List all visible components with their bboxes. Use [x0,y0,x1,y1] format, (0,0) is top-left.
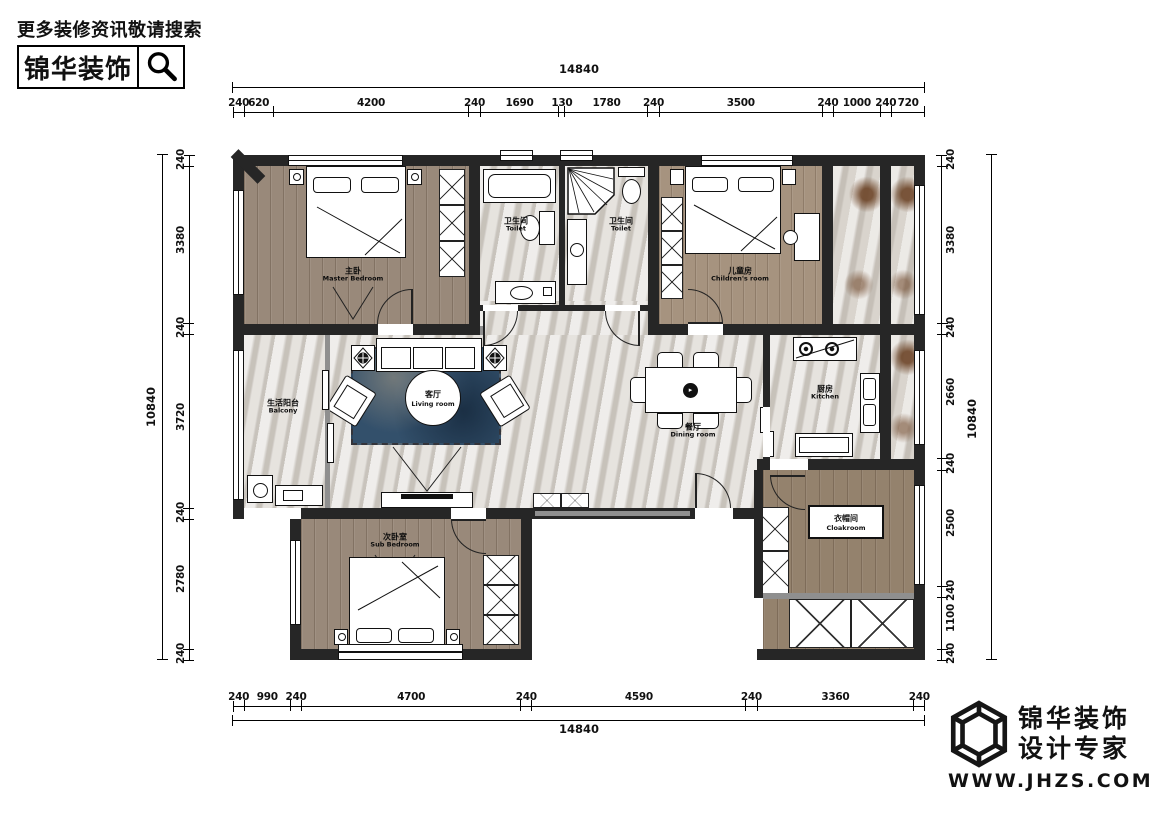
dim-left-total: 10840 [144,387,158,427]
dim-value: 4700 [397,691,425,703]
dim-value: 3720 [175,413,187,431]
master-wardrobe-cell [439,169,465,205]
dim-segment: 240 [233,97,244,113]
fixture [283,490,303,501]
window [288,155,403,166]
service-strip-floor [891,335,914,459]
dim-value: 240 [741,691,762,703]
armchair-seat [333,384,367,419]
dim-value: 240 [175,320,187,338]
label-en: Living room [411,400,454,408]
pillow [738,177,774,192]
dim-value: 4590 [625,691,653,703]
dim-segment: 3360 [757,691,914,707]
entry-door-leaf [695,473,697,508]
dim-value: 240 [945,152,957,170]
dim-segment: 720 [891,97,925,113]
wall-secondary [535,511,690,516]
dim-segment: 3720 [172,335,190,508]
dim-segment: 240 [521,691,532,707]
dim-value: 240 [175,646,187,664]
dining-chair [736,377,752,403]
door-opening [451,508,486,519]
sofa-seat [445,347,475,369]
wall [880,335,891,459]
shoe-cabinet-cell [561,493,589,508]
window [914,350,925,445]
dim-value: 240 [464,97,485,109]
dim-segment: 240 [941,324,959,335]
nightstand [407,169,422,185]
room-label-kitchen: 厨房 Kitchen [811,384,839,401]
dim-segment: 990 [244,691,290,707]
sink-basin [510,286,533,300]
room-label-toilet-left: 卫生间 Toilet [504,216,528,233]
window [914,185,925,315]
dim-top-total-line [233,87,925,88]
dim-segment: 240 [172,155,190,166]
lamp-icon [450,633,458,641]
dim-tick [157,659,168,660]
wall [521,519,532,660]
wall [880,166,891,324]
sink-counter [495,281,556,304]
dim-chain-left: 240 3380 240 3720 240 2780 240 [172,155,190,660]
dining-chair [657,352,683,368]
window-sill [500,150,533,161]
dim-value: 620 [248,97,269,109]
window [914,485,925,585]
dining-chair [630,377,646,403]
wall [469,166,480,324]
label-en: Dining room [671,432,716,440]
brand-website: WWW.JHZS.COM [948,770,1143,792]
dim-segment: 4200 [273,97,469,113]
wall [822,166,833,324]
sink-basin [863,378,876,400]
dim-value: 240 [817,97,838,109]
dim-chain-top: 240 620 4200 240 1690 130 1780 240 3500 … [233,97,925,113]
sub-wardrobe-cell [483,585,519,615]
sub-wardrobe-cell [483,615,519,645]
dim-value: 1780 [592,97,620,109]
master-wardrobe-cell [439,205,465,241]
dim-chain-right: 240 3380 240 2660 240 2500 240 1100 240 [941,155,959,660]
dim-value: 1000 [843,97,871,109]
toilet-tank [618,167,645,177]
door-leaf [770,475,805,477]
label-en: Children's room [711,276,769,284]
pillow [692,177,728,192]
pillow [361,177,399,193]
page: { "branding_top": { "tagline": "更多装修资讯敬请… [0,0,1158,818]
nightstand [289,169,304,185]
dim-segment: 240 [822,97,833,113]
dim-segment: 1690 [480,97,559,113]
dim-value: 720 [898,97,919,109]
window [233,350,244,500]
dim-value: 3380 [175,236,187,254]
room-label-balcony: 生活阳台 Balcony [267,398,299,415]
nightstand [782,169,796,185]
top-right-strip-floor [891,166,914,324]
dim-chain-bottom: 240 990 240 4700 240 4590 240 3360 240 [233,691,925,707]
label-en: Toilet [609,226,633,234]
dim-segment: 240 [941,649,959,660]
nightstand [334,629,348,645]
door-leaf [411,289,413,324]
door-leaf [688,322,723,324]
wall [301,508,763,519]
dim-tick [986,154,997,155]
dim-segment: 3500 [659,97,822,113]
dim-value: 240 [945,320,957,338]
sofa-seat [413,347,443,369]
dim-left-total-line [162,155,163,660]
dim-segment: 240 [233,691,244,707]
dim-segment: 1780 [565,97,648,113]
dim-segment: 240 [941,587,959,598]
room-label-toilet-right: 卫生间 Toilet [609,216,633,233]
brand-logo-text: 锦华装饰 [19,47,137,87]
dim-right-total: 10840 [965,399,979,439]
dim-segment: 240 [290,691,301,707]
dim-tick [232,82,233,93]
door-leaf [483,311,485,346]
pillow [398,628,434,643]
shoe-cabinet-cell [533,493,561,508]
dim-value: 4200 [357,97,385,109]
brand-names: 锦华装饰 设计专家 [1018,704,1130,765]
dim-segment: 240 [914,691,925,707]
window-sill [560,150,593,161]
sliding-door-panel [322,370,329,410]
dim-value: 2660 [945,388,957,406]
floor-plan: ▸ [233,155,925,660]
label-en: Master Bedroom [323,276,384,284]
sink-counter [567,219,587,285]
bay-window [338,644,463,660]
nightstand [670,169,684,185]
brand-company: 锦华装饰 [1018,704,1130,735]
pillow [356,628,392,643]
burner-icon [825,342,839,356]
brand-row: 锦华装饰 设计专家 [948,700,1143,768]
dim-segment: 240 [172,324,190,335]
dim-segment: 240 [746,691,757,707]
dim-segment: 2660 [941,335,959,459]
desk-stool [783,230,798,245]
wall [559,166,565,305]
dim-segment: 2500 [941,470,959,587]
dim-right-total-line [991,155,992,660]
fridge-inner [799,437,849,453]
dim-value: 240 [228,97,249,109]
dim-tick [986,659,997,660]
dim-segment: 240 [880,97,891,113]
dim-segment: 240 [172,508,190,519]
dim-value: 240 [285,691,306,703]
dim-value: 2500 [945,519,957,537]
dim-value: 240 [516,691,537,703]
lamp-icon [293,173,301,181]
balcony-divider [325,335,330,508]
dim-segment: 2780 [172,520,190,650]
sink-basin [863,404,876,426]
toilet-tank [539,211,555,245]
label-zh: 客厅 [425,389,441,400]
label-en: Toilet [504,226,528,234]
dim-value: 240 [175,152,187,170]
dim-segment: 3380 [941,166,959,324]
room-label-living-room: 客厅 Living room [405,370,461,426]
label-en: Sub Bedroom [370,542,419,550]
kitchen-sink-counter [860,373,880,433]
side-table [351,345,375,371]
brand-slogan: 设计专家 [1018,734,1130,765]
label-en: Cloakroom [826,524,865,532]
wall [648,166,659,324]
room-label-sub-bedroom: 次卧室 Sub Bedroom [370,532,419,549]
nightstand [446,629,460,645]
entry-door-opening [695,508,733,519]
dim-value: 2780 [175,575,187,593]
dim-value: 990 [257,691,278,703]
dim-segment: 240 [172,649,190,660]
dim-value: 3500 [727,97,755,109]
dim-value: 240 [228,691,249,703]
window [233,190,244,295]
door-leaf [451,519,486,521]
dim-value: 240 [945,583,957,601]
toilet-bowl [622,179,641,204]
dim-value: 240 [643,97,664,109]
children-wardrobe-cell [661,197,683,231]
dim-segment: 1100 [941,598,959,649]
search-icon [137,47,183,87]
label-zh: 衣帽间 [834,513,858,524]
tv [401,494,453,499]
door-opening [378,324,413,335]
dim-segment: 4590 [532,691,746,707]
dim-segment: 3380 [172,166,190,324]
washing-machine [247,475,273,503]
label-en: Balcony [267,408,299,416]
brand-logo-box: 锦华装饰 [17,45,185,89]
label-en: Kitchen [811,394,839,402]
children-wardrobe-cell [661,265,683,299]
door-leaf [638,311,640,346]
search-tagline: 更多装修资讯敬请搜索 [17,16,202,42]
dim-segment: 1000 [834,97,881,113]
dim-bottom-total: 14840 [233,722,925,736]
dim-segment: 240 [941,155,959,166]
dim-value: 240 [945,456,957,474]
dining-table: ▸ [645,367,737,413]
dim-value: 1100 [945,614,957,632]
brand-footer: 锦华装饰 设计专家 WWW.JHZS.COM [948,700,1143,792]
room-label-dining-room: 餐厅 Dining room [671,422,716,439]
dim-bottom-total-line [233,720,925,721]
shower-corner [567,167,617,217]
dim-segment: 240 [648,97,659,113]
master-wardrobe-cell [439,241,465,277]
cloak-wardrobe-cell [761,507,789,551]
cloak-wardrobe-cell [789,599,851,648]
fixture [543,287,552,296]
sink-basin [570,243,584,257]
bathtub-inner [488,174,551,198]
side-table [483,345,507,371]
room-label-cloakroom: 衣帽间 Cloakroom [808,505,884,539]
door-opening [688,324,723,335]
dim-segment: 240 [941,459,959,470]
dim-tick [924,82,925,93]
lamp-icon [338,633,346,641]
dim-value: 240 [909,691,930,703]
dim-value: 3380 [945,236,957,254]
dim-value: 3360 [821,691,849,703]
bathtub [483,169,556,203]
dim-segment: 240 [469,97,480,113]
dim-value: 240 [175,505,187,523]
dim-value: 240 [945,646,957,664]
wall [233,324,480,335]
room-label-children-room: 儿童房 Children's room [711,266,769,283]
children-wardrobe-cell [661,231,683,265]
wall-secondary [763,593,914,599]
burner-icon [799,342,813,356]
room-label-master-bedroom: 主卧 Master Bedroom [323,266,384,283]
window [290,540,301,625]
sub-wardrobe-cell [483,555,519,585]
door-opening [763,407,770,457]
cube-logo-icon [948,700,1010,768]
balcony-counter [275,485,323,506]
dining-chair [693,352,719,368]
dim-segment: 620 [244,97,273,113]
dim-segment: 4700 [302,691,521,707]
fridge [795,433,853,457]
dim-tick [157,154,168,155]
pillow [313,177,351,193]
lamp-icon [411,173,419,181]
cloak-wardrobe-cell [761,551,789,595]
door-opening [770,459,808,470]
wall [757,649,925,660]
window [701,155,793,166]
table-centerpiece: ▸ [683,383,698,398]
dim-value: 240 [875,97,896,109]
top-right-balcony-floor [833,166,880,324]
dim-value: 130 [551,97,572,109]
dim-top-total: 14840 [233,62,925,76]
washer-drum [253,483,268,498]
wall [754,470,763,598]
sofa-seat [381,347,411,369]
cloak-wardrobe-cell [851,599,914,648]
dim-value: 1690 [505,97,533,109]
sliding-door-panel [327,423,334,463]
